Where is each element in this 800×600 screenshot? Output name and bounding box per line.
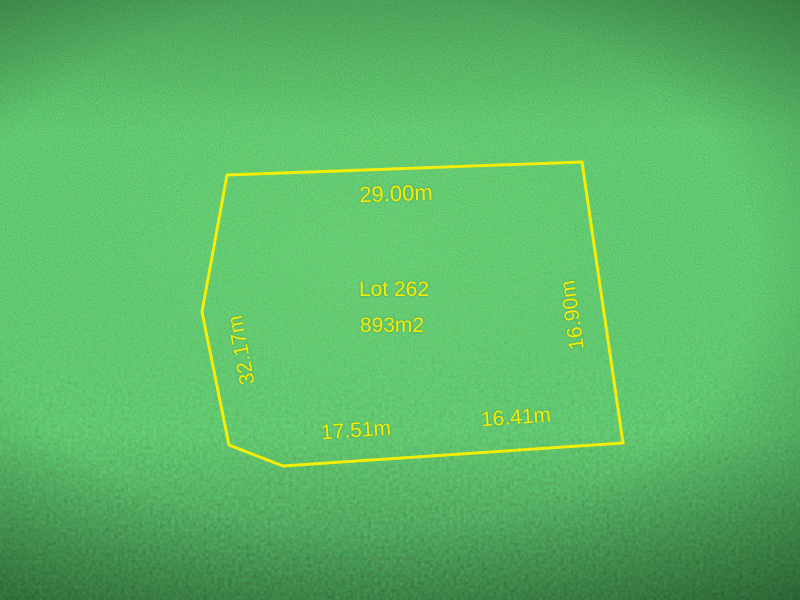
land-lot-photo: 29.00m 32.17m 16.90m 17.51m 16.41m Lot 2… (0, 0, 800, 600)
lot-area: 893m2 (360, 314, 424, 338)
lot-number: Lot 262 (359, 278, 429, 302)
measurement-bottom-right-edge: 16.41m (480, 404, 552, 433)
measurement-bottom-left-edge: 17.51m (320, 417, 392, 446)
measurement-top-edge: 29.00m (359, 180, 433, 209)
